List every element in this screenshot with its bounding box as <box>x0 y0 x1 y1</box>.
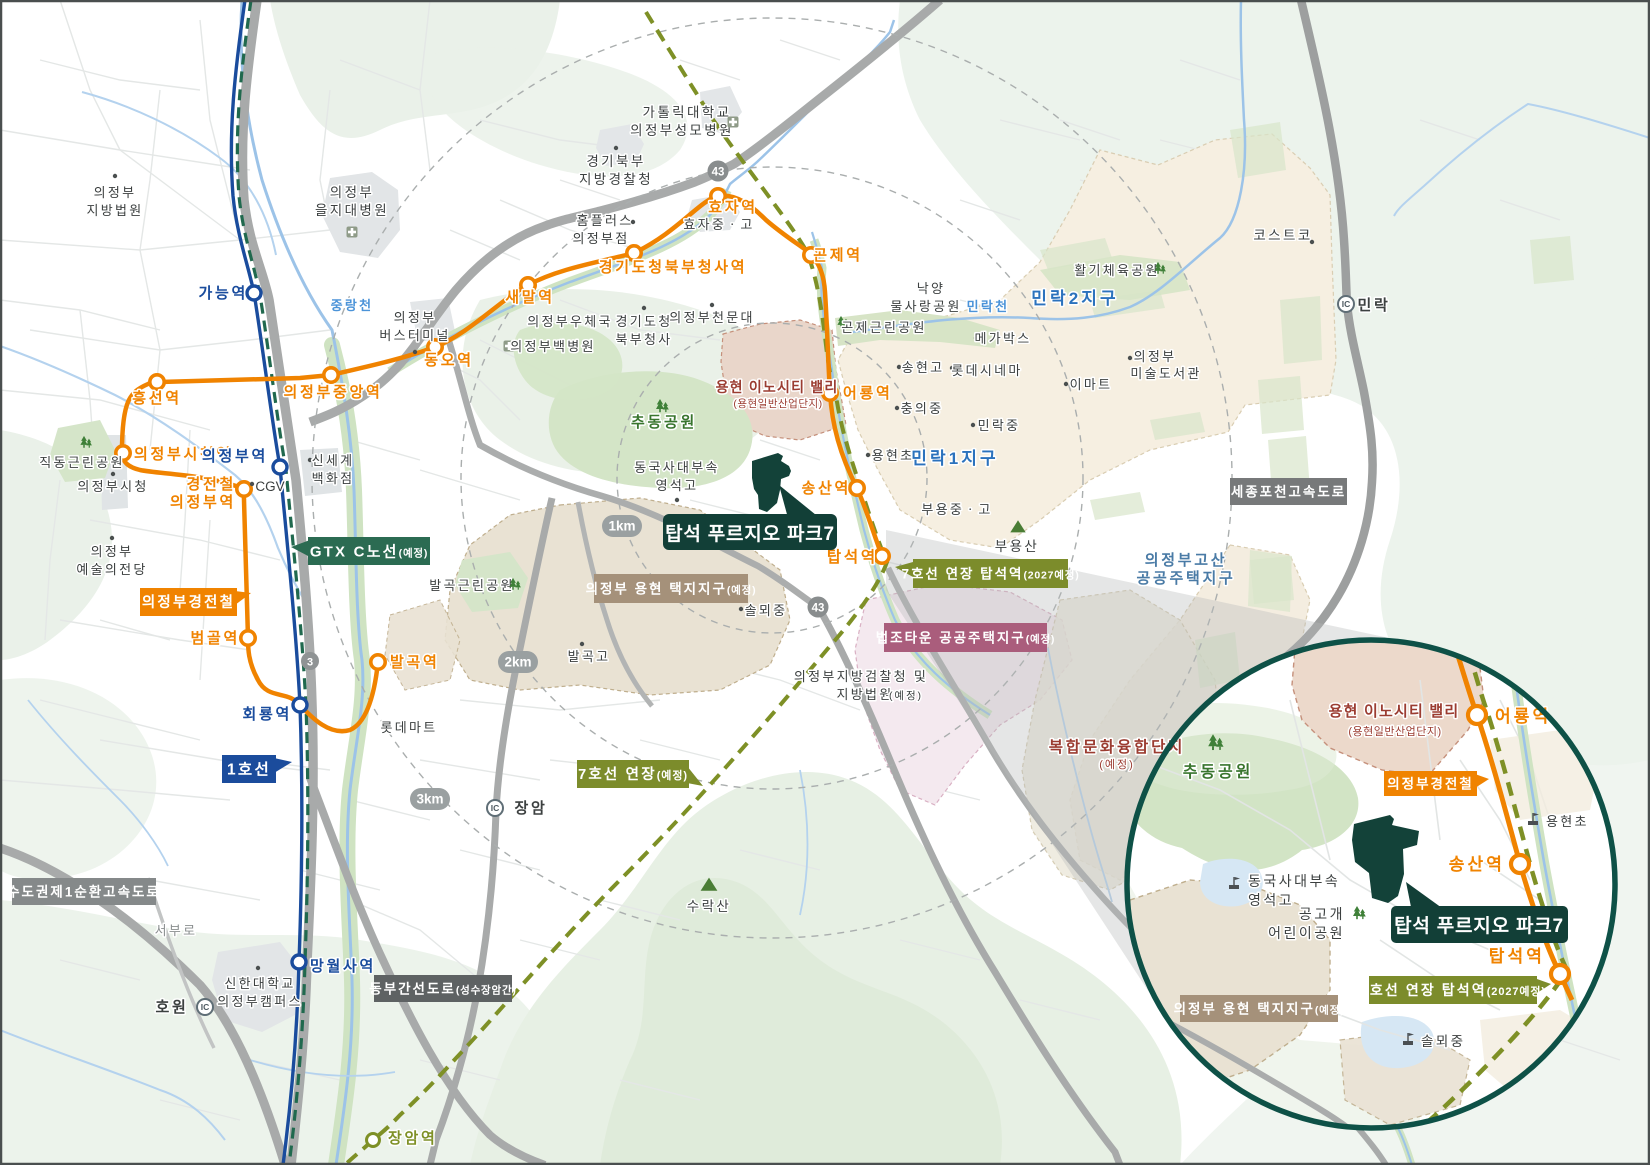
svg-text:민락중: 민락중 <box>978 418 1021 433</box>
svg-text:의정부시청: 의정부시청 <box>77 479 148 494</box>
svg-text:부용중ㆍ고: 부용중ㆍ고 <box>921 502 992 517</box>
svg-text:추동공원: 추동공원 <box>631 414 697 431</box>
svg-text:이마트: 이마트 <box>1070 377 1113 392</box>
svg-text:동오역: 동오역 <box>424 352 474 369</box>
svg-text:서부로: 서부로 <box>155 923 198 938</box>
svg-text:수락산: 수락산 <box>687 899 731 914</box>
svg-text:용현 이노시티 밸리: 용현 이노시티 밸리 <box>1329 703 1460 720</box>
svg-text:을지대병원: 을지대병원 <box>315 203 389 218</box>
svg-text:범골역: 범골역 <box>190 630 240 647</box>
svg-text:곤제역: 곤제역 <box>813 247 863 264</box>
svg-text:의정부캠퍼스: 의정부캠퍼스 <box>217 994 303 1009</box>
svg-text:의정부역: 의정부역 <box>202 447 268 465</box>
svg-text:회룡역: 회룡역 <box>242 706 292 723</box>
svg-text:송현고: 송현고 <box>902 360 945 375</box>
svg-text:용현초: 용현초 <box>872 448 915 463</box>
svg-text:송산역: 송산역 <box>1449 855 1505 874</box>
svg-text:IC: IC <box>201 1002 210 1012</box>
svg-text:세종포천고속도로: 세종포천고속도로 <box>1231 484 1346 499</box>
svg-text:효자중ㆍ고: 효자중ㆍ고 <box>683 217 754 232</box>
svg-text:의정부지방검찰청 및: 의정부지방검찰청 및 <box>794 669 928 684</box>
svg-text:새말역: 새말역 <box>505 288 555 306</box>
svg-text:코스트코: 코스트코 <box>1253 228 1312 243</box>
svg-text:의정부성모병원: 의정부성모병원 <box>630 123 734 138</box>
svg-text:백화점: 백화점 <box>312 471 355 486</box>
svg-text:지방경찰청: 지방경찰청 <box>579 172 653 187</box>
svg-text:버스터미널: 버스터미널 <box>379 328 450 343</box>
svg-text:솔뫼중: 솔뫼중 <box>1421 1034 1465 1049</box>
svg-text:가톨릭대학교: 가톨릭대학교 <box>643 105 732 120</box>
svg-text:경기북부: 경기북부 <box>586 154 645 169</box>
svg-text:롯데마트: 롯데마트 <box>380 720 437 735</box>
svg-text:용현초: 용현초 <box>1546 814 1589 829</box>
svg-text:동국사대부속: 동국사대부속 <box>1248 873 1340 889</box>
svg-text:영석고: 영석고 <box>1248 892 1294 908</box>
svg-text:의정부백병원: 의정부백병원 <box>510 339 596 354</box>
svg-text:(예정): (예정) <box>1099 758 1135 771</box>
svg-text:장암: 장암 <box>514 799 547 817</box>
svg-text:의정부: 의정부 <box>330 185 374 200</box>
svg-text:탑석역: 탑석역 <box>1489 946 1545 966</box>
svg-text:발곡역: 발곡역 <box>390 654 440 671</box>
svg-text:신세계: 신세계 <box>312 453 355 468</box>
svg-text:의정부: 의정부 <box>394 310 437 325</box>
svg-text:(용현일반산업단지): (용현일반산업단지) <box>1348 724 1441 738</box>
svg-text:공공주택지구: 공공주택지구 <box>1136 569 1235 587</box>
svg-text:곤제근린공원: 곤제근린공원 <box>841 320 927 335</box>
svg-text:어린이공원: 어린이공원 <box>1268 925 1345 941</box>
svg-text:추동공원: 추동공원 <box>1183 762 1253 781</box>
svg-text:IC: IC <box>1342 299 1351 309</box>
svg-text:송산역: 송산역 <box>801 480 851 497</box>
svg-text:경전철: 경전철 <box>186 475 236 493</box>
svg-text:망월사역: 망월사역 <box>310 957 376 975</box>
svg-text:의정부역: 의정부역 <box>170 493 236 511</box>
svg-text:중랑천: 중랑천 <box>331 298 374 313</box>
svg-text:부용산: 부용산 <box>995 539 1039 554</box>
svg-text:동국사대부속: 동국사대부속 <box>634 460 720 475</box>
svg-text:1km: 1km <box>608 519 635 534</box>
svg-text:의정부경전철: 의정부경전철 <box>142 593 235 611</box>
svg-text:미술도서관: 미술도서관 <box>1130 366 1201 381</box>
svg-text:북부청사: 북부청사 <box>615 332 672 347</box>
svg-text:탑석역: 탑석역 <box>827 547 878 566</box>
svg-text:의정부고산: 의정부고산 <box>1145 551 1228 569</box>
svg-text:경기도청: 경기도청 <box>615 314 672 329</box>
svg-text:장암역: 장암역 <box>388 1129 438 1147</box>
svg-text:충의중: 충의중 <box>901 401 944 416</box>
svg-text:신한대학교: 신한대학교 <box>224 976 295 991</box>
svg-text:직동근린공원: 직동근린공원 <box>39 455 125 470</box>
svg-text:민락: 민락 <box>1357 296 1390 314</box>
svg-text:활기체육공원: 활기체육공원 <box>1074 263 1160 278</box>
svg-text:수도권제1순환고속도로: 수도권제1순환고속도로 <box>7 883 161 899</box>
svg-text:가능역: 가능역 <box>198 285 248 302</box>
svg-text:지방법원: 지방법원 <box>836 687 893 702</box>
svg-text:용현 이노시티 밸리: 용현 이노시티 밸리 <box>716 379 839 395</box>
svg-text:흥선역: 흥선역 <box>132 389 182 407</box>
svg-text:롯데시네마: 롯데시네마 <box>951 363 1022 378</box>
svg-text:민락2지구: 민락2지구 <box>1031 289 1119 308</box>
svg-text:민락1지구: 민락1지구 <box>911 449 999 468</box>
svg-text:효자역: 효자역 <box>708 199 758 216</box>
svg-text:의정부경전철: 의정부경전철 <box>1387 775 1474 791</box>
svg-text:43: 43 <box>812 603 825 615</box>
svg-text:솔뫼중: 솔뫼중 <box>745 603 788 618</box>
svg-text:낙양: 낙양 <box>917 281 946 296</box>
svg-text:의정부천문대: 의정부천문대 <box>669 310 755 325</box>
svg-text:호원: 호원 <box>155 999 188 1016</box>
svg-text:발곡근린공원: 발곡근린공원 <box>429 578 515 593</box>
svg-text:3km: 3km <box>416 792 443 807</box>
svg-text:의정부우체국: 의정부우체국 <box>527 314 613 329</box>
svg-text:의정부점: 의정부점 <box>572 231 629 246</box>
svg-text:2km: 2km <box>504 655 531 670</box>
svg-text:3: 3 <box>307 657 313 669</box>
svg-text:43: 43 <box>712 167 725 179</box>
svg-text:탑석 푸르지오 파크7: 탑석 푸르지오 파크7 <box>665 523 835 545</box>
svg-text:의정부: 의정부 <box>1134 349 1177 364</box>
svg-text:물사랑공원: 물사랑공원 <box>890 299 961 314</box>
svg-text:IC: IC <box>491 803 500 813</box>
svg-text:의정부중앙역: 의정부중앙역 <box>283 383 382 401</box>
svg-text:의정부: 의정부 <box>94 185 137 200</box>
svg-text:영석고: 영석고 <box>656 478 699 493</box>
svg-text:민락천: 민락천 <box>967 299 1010 314</box>
svg-text:공고개: 공고개 <box>1299 906 1345 922</box>
svg-text:지방법원: 지방법원 <box>86 203 143 218</box>
svg-text:어룡역: 어룡역 <box>843 385 893 402</box>
svg-text:의정부: 의정부 <box>91 544 134 559</box>
svg-text:탑석 푸르지오 파크7: 탑석 푸르지오 파크7 <box>1394 915 1564 937</box>
svg-text:예술의전당: 예술의전당 <box>76 562 147 577</box>
svg-text:홈플러스: 홈플러스 <box>576 213 633 228</box>
svg-text:메가박스: 메가박스 <box>974 331 1031 346</box>
svg-text:1호선: 1호선 <box>227 761 271 779</box>
svg-text:(용현일반산업단지): (용현일반산업단지) <box>733 397 822 410</box>
svg-text:CGV: CGV <box>255 479 284 494</box>
svg-text:경기도청북부청사역: 경기도청북부청사역 <box>599 258 748 276</box>
svg-text:발곡고: 발곡고 <box>568 649 611 664</box>
svg-text:(예정): (예정) <box>889 689 923 702</box>
